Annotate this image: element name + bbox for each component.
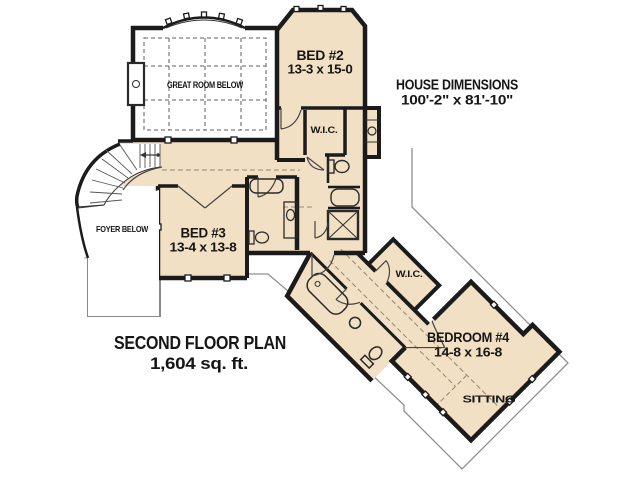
- bed2-window-post: [294, 7, 299, 12]
- bed3-window-post: [224, 275, 230, 281]
- bed2-label: BED #2: [297, 48, 344, 63]
- bed2-window-post: [318, 6, 323, 11]
- bed3-window-post: [185, 275, 191, 281]
- bed2-window-post: [341, 7, 346, 12]
- plan-area: 1,604 sq. ft.: [150, 355, 248, 373]
- plan-title: SECOND FLOOR PLAN: [114, 333, 286, 353]
- sitting-label: SITTING: [463, 394, 516, 406]
- bay-window-outer-arc: [163, 18, 245, 29]
- bedroom4-dimensions: 14-8 x 16-8: [434, 346, 502, 360]
- bay-window-post: [184, 13, 190, 19]
- fireplace: [128, 63, 144, 105]
- bed3-dimensions: 13-4 x 13-8: [170, 241, 237, 255]
- great-room-label: GREAT ROOM BELOW: [167, 80, 244, 90]
- great-room: [128, 12, 277, 143]
- wic-bed2-label: W.I.C.: [311, 125, 338, 136]
- balcony-post: [165, 137, 171, 143]
- bay-window-post: [219, 13, 225, 19]
- bed2-dimensions: 13-3 x 15-0: [288, 63, 353, 77]
- bay-window-post: [165, 18, 171, 24]
- floor-plan-canvas: GREAT ROOM BELOW BED #2 13-3 x 15-0 HOUS…: [0, 0, 640, 480]
- foyer-label: FOYER BELOW: [96, 224, 149, 234]
- wic-bed4-label: W.I.C.: [396, 269, 423, 280]
- balcony-post: [231, 137, 237, 143]
- foyer-floor: [77, 190, 159, 316]
- bed3-label: BED #3: [181, 226, 227, 241]
- stair-arrow-dot: [156, 153, 160, 157]
- bay-window-post: [202, 12, 207, 17]
- bay-window-post: [236, 18, 242, 24]
- house-dimensions-title: HOUSE DIMENSIONS: [396, 78, 519, 94]
- house-dimensions-value: 100'-2" x 81'-10": [401, 93, 513, 108]
- bedroom4-label: BEDROOM #4: [427, 330, 510, 345]
- floor-plan-drawing: GREAT ROOM BELOW BED #2 13-3 x 15-0 HOUS…: [0, 0, 640, 480]
